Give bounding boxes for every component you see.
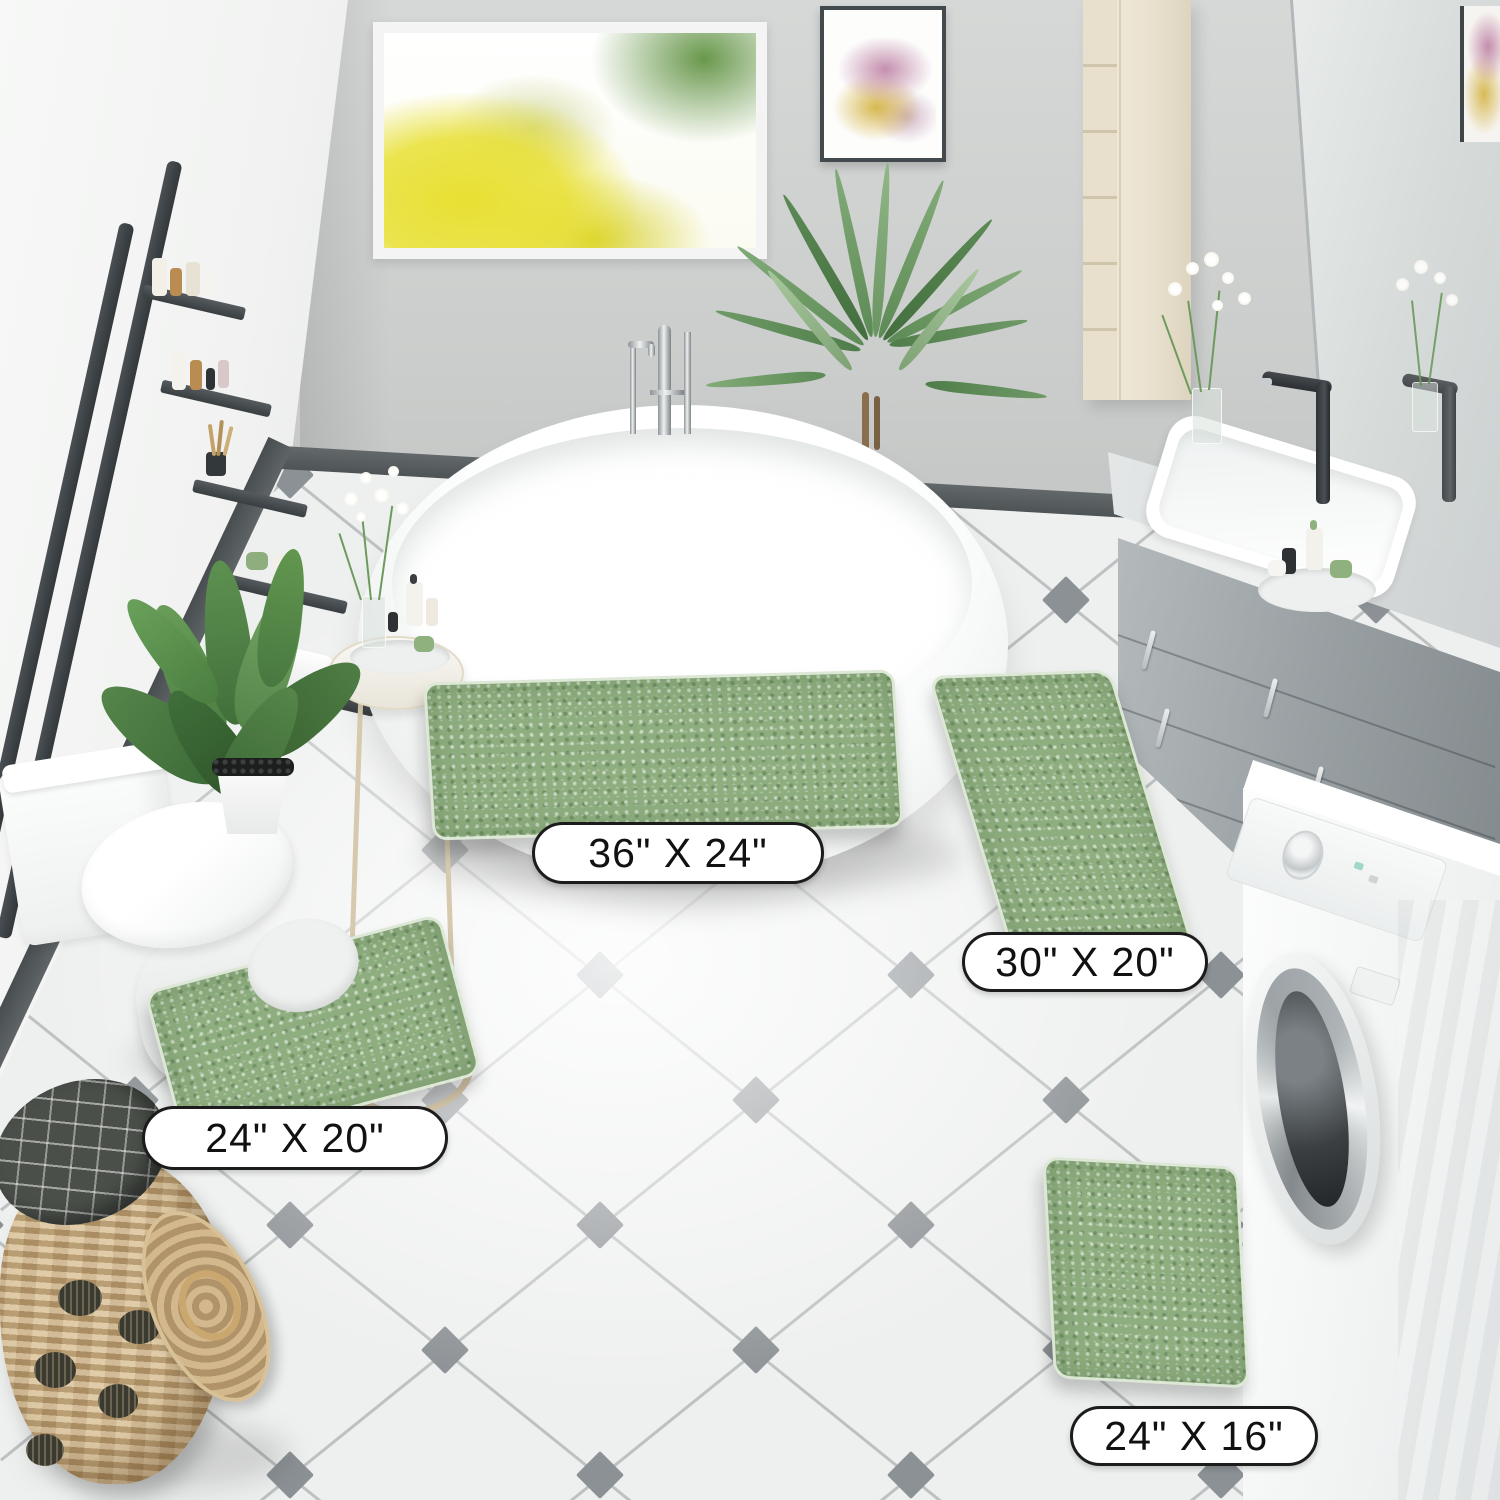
jar <box>246 552 268 570</box>
faucet-spout-tip <box>648 344 655 357</box>
flower <box>1222 272 1234 284</box>
cabinet-shelves <box>1083 0 1117 400</box>
washer-dial <box>1276 825 1330 885</box>
pump <box>1310 520 1317 530</box>
shelf-line <box>1083 328 1117 331</box>
bottle <box>388 612 398 632</box>
tall-cabinet <box>1083 0 1191 400</box>
bath-mat-36x24 <box>423 670 904 841</box>
flower <box>1186 262 1199 275</box>
flower <box>344 492 358 506</box>
hand-shower-hose <box>684 332 691 434</box>
flower <box>1434 272 1446 284</box>
bottle <box>186 262 200 296</box>
drawer-handle <box>1155 708 1170 748</box>
basket-lid-handle <box>168 1260 252 1350</box>
size-label-30x20: 30" X 20" <box>962 932 1208 992</box>
faucet-pipe <box>630 348 636 434</box>
palm-trunk <box>862 392 869 450</box>
shelf-line <box>1083 262 1117 265</box>
faucet-riser <box>658 325 671 435</box>
bottle <box>190 360 202 390</box>
bottle <box>218 360 229 388</box>
window-view-autumn-tree <box>384 33 756 248</box>
drawer-handle <box>1141 630 1156 670</box>
shelf-line <box>1083 64 1117 67</box>
washer-button <box>1368 875 1379 884</box>
drawer-handle <box>1263 678 1278 718</box>
flower <box>396 502 409 515</box>
flower <box>1446 294 1458 306</box>
basket-dot <box>98 1384 138 1418</box>
green-jar <box>1330 560 1352 578</box>
glass-vase <box>1412 382 1438 432</box>
basket-dot <box>34 1352 76 1388</box>
washer-side-ridges <box>1398 900 1500 1500</box>
bottle <box>170 268 182 296</box>
size-label-24x16: 24" X 16" <box>1070 1406 1318 1466</box>
flower <box>1168 282 1182 296</box>
drawer-seam <box>1117 634 1495 768</box>
bottle <box>204 274 214 296</box>
flower <box>356 512 366 522</box>
faucet-tip <box>1256 378 1272 386</box>
window <box>373 22 767 259</box>
wall-art-reflection <box>1460 6 1500 142</box>
table-vase <box>362 596 386 648</box>
glass-vase <box>1192 388 1222 444</box>
size-label-24x20: 24" X 20" <box>142 1106 448 1170</box>
bottle <box>152 258 167 296</box>
flower <box>1212 300 1223 311</box>
flower <box>1238 292 1251 305</box>
bottle <box>206 368 215 390</box>
pump <box>410 574 417 584</box>
flower <box>374 488 389 503</box>
flower <box>1396 278 1409 291</box>
shelf-line <box>1083 130 1117 133</box>
flower <box>360 472 372 484</box>
brush-cup <box>206 452 226 476</box>
lotion-bottle <box>406 582 423 626</box>
palm-trunk <box>874 396 880 450</box>
green-jar <box>414 636 434 652</box>
basket-dot <box>26 1434 64 1466</box>
lotion-bottle <box>1306 528 1323 570</box>
faucet-crossbar <box>650 390 684 395</box>
washer-indicator-light <box>1353 861 1364 870</box>
faucet-riser <box>1316 382 1330 504</box>
bathroom-product-scene: 36" X 24" 30" X 20" 24" X 20" 24" X 16" <box>0 0 1500 1500</box>
size-label-36x24: 36" X 24" <box>532 822 824 884</box>
basket-dot <box>58 1280 102 1316</box>
flower <box>388 466 399 477</box>
wall-art <box>820 6 946 162</box>
cabinet-door-seam <box>1119 0 1121 400</box>
jar <box>1268 560 1286 576</box>
faucet-riser <box>1442 386 1456 502</box>
bottle <box>172 350 186 390</box>
bath-mat-24x16 <box>1042 1156 1249 1388</box>
wall-art-abstract <box>830 38 936 150</box>
shelf-line <box>1083 196 1117 199</box>
flower <box>1414 260 1428 274</box>
bottle <box>426 598 438 626</box>
plant-pebbles <box>212 758 294 776</box>
flower <box>1204 252 1219 267</box>
